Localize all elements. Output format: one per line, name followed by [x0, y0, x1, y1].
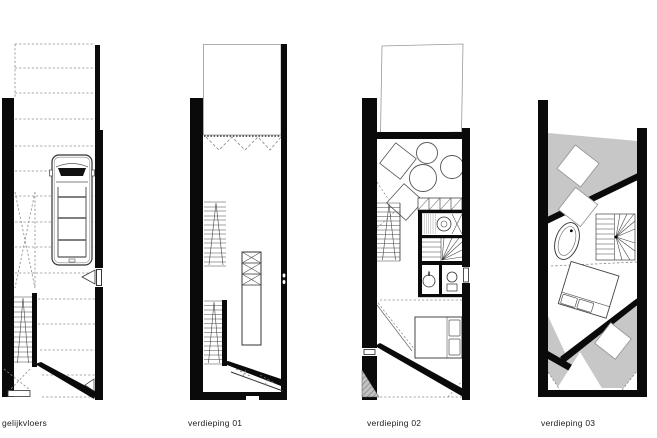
right-wall-upper: [95, 45, 100, 130]
lounge-chair-icon: [441, 156, 464, 179]
toilet-icon: [447, 272, 457, 291]
kitchen-island-icon: [242, 252, 261, 345]
top-wall: [377, 132, 462, 139]
right-wall: [637, 128, 647, 397]
plan-label-gelijkvloers: gelijkvloers: [2, 418, 47, 428]
right-wall: [281, 44, 287, 400]
floorplan-verdieping-01: [190, 44, 287, 400]
lounge-chair-icon: [410, 165, 437, 192]
winder-stair-icon: [421, 238, 462, 261]
bed-icon: [558, 261, 619, 318]
bottom-threshold: [246, 396, 259, 400]
terrace-door-icon: [362, 348, 377, 356]
floorplan-verdieping-02: [362, 44, 470, 400]
left-wall: [2, 98, 14, 397]
folding-door-leaves: [206, 137, 281, 150]
diagonal-wall: [35, 362, 97, 399]
floorplans-drawing: [0, 0, 657, 438]
floor-plans-sheet: gelijkvloers verdieping 01 verdieping 02…: [0, 0, 657, 438]
roof-volume-outline: [381, 44, 464, 134]
utility-core: [418, 198, 462, 297]
right-wall: [462, 128, 470, 400]
lounge-chair-icon: [417, 143, 438, 164]
room-divider-dashes: [551, 262, 637, 266]
side-entrance-door-icon: [82, 268, 103, 287]
left-wall: [538, 100, 548, 397]
bathroom-sink-icon: [423, 272, 435, 288]
bottom-wall: [545, 390, 640, 397]
wardrobe-icon: [418, 198, 462, 210]
floorplan-verdieping-03: [538, 100, 647, 397]
lower-staircase-icon: [204, 300, 227, 366]
winder-staircase-icon: [596, 214, 635, 260]
core-door-icon: [462, 267, 470, 283]
laundry-icon: [422, 214, 462, 234]
plan-label-verdieping-02: verdieping 02: [367, 418, 421, 428]
bottom-wall: [190, 392, 287, 400]
plan-label-verdieping-03: verdieping 03: [541, 418, 595, 428]
void-outline: [204, 45, 282, 136]
entry-step: [8, 391, 30, 397]
van-icon: [50, 155, 95, 265]
guide-line: [377, 305, 412, 351]
right-wall-lower: [95, 130, 103, 400]
ramp-dashes: [15, 192, 35, 288]
bed-icon: [415, 317, 462, 358]
diagonal-wall: [222, 361, 284, 386]
plan-label-verdieping-01: verdieping 01: [188, 418, 242, 428]
staircase-icon: [14, 293, 37, 367]
staircase-icon: [377, 203, 400, 261]
floorplan-gelijkvloers: [2, 44, 103, 400]
left-wall: [190, 98, 203, 400]
upper-staircase-icon: [204, 202, 226, 266]
